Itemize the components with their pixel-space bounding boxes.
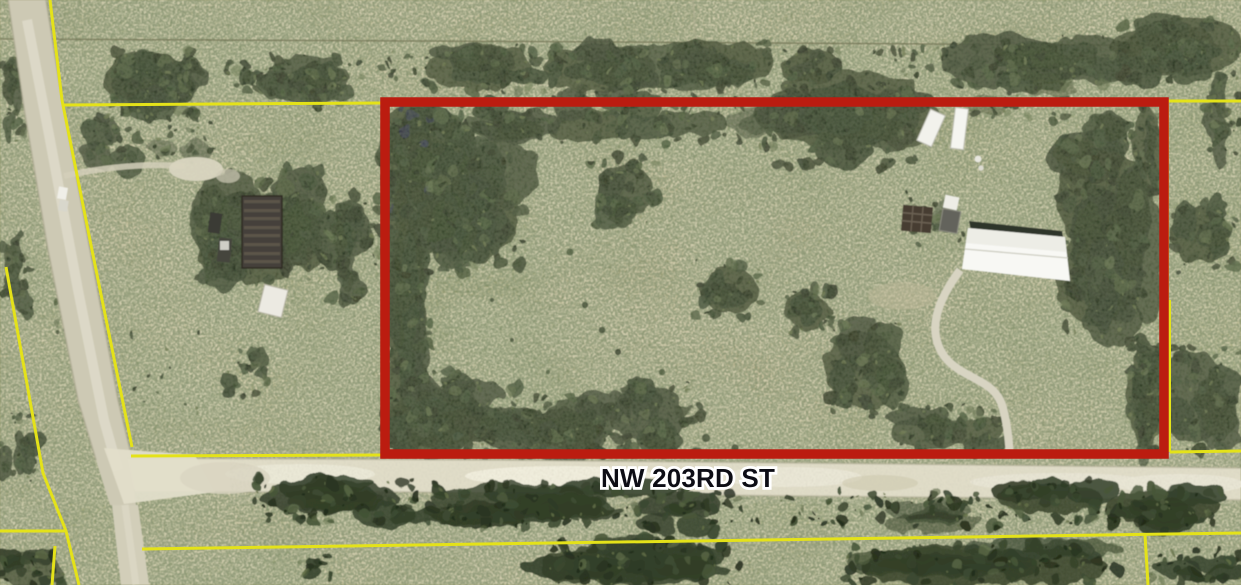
svg-text:NW 203RD ST: NW 203RD ST	[601, 463, 775, 493]
